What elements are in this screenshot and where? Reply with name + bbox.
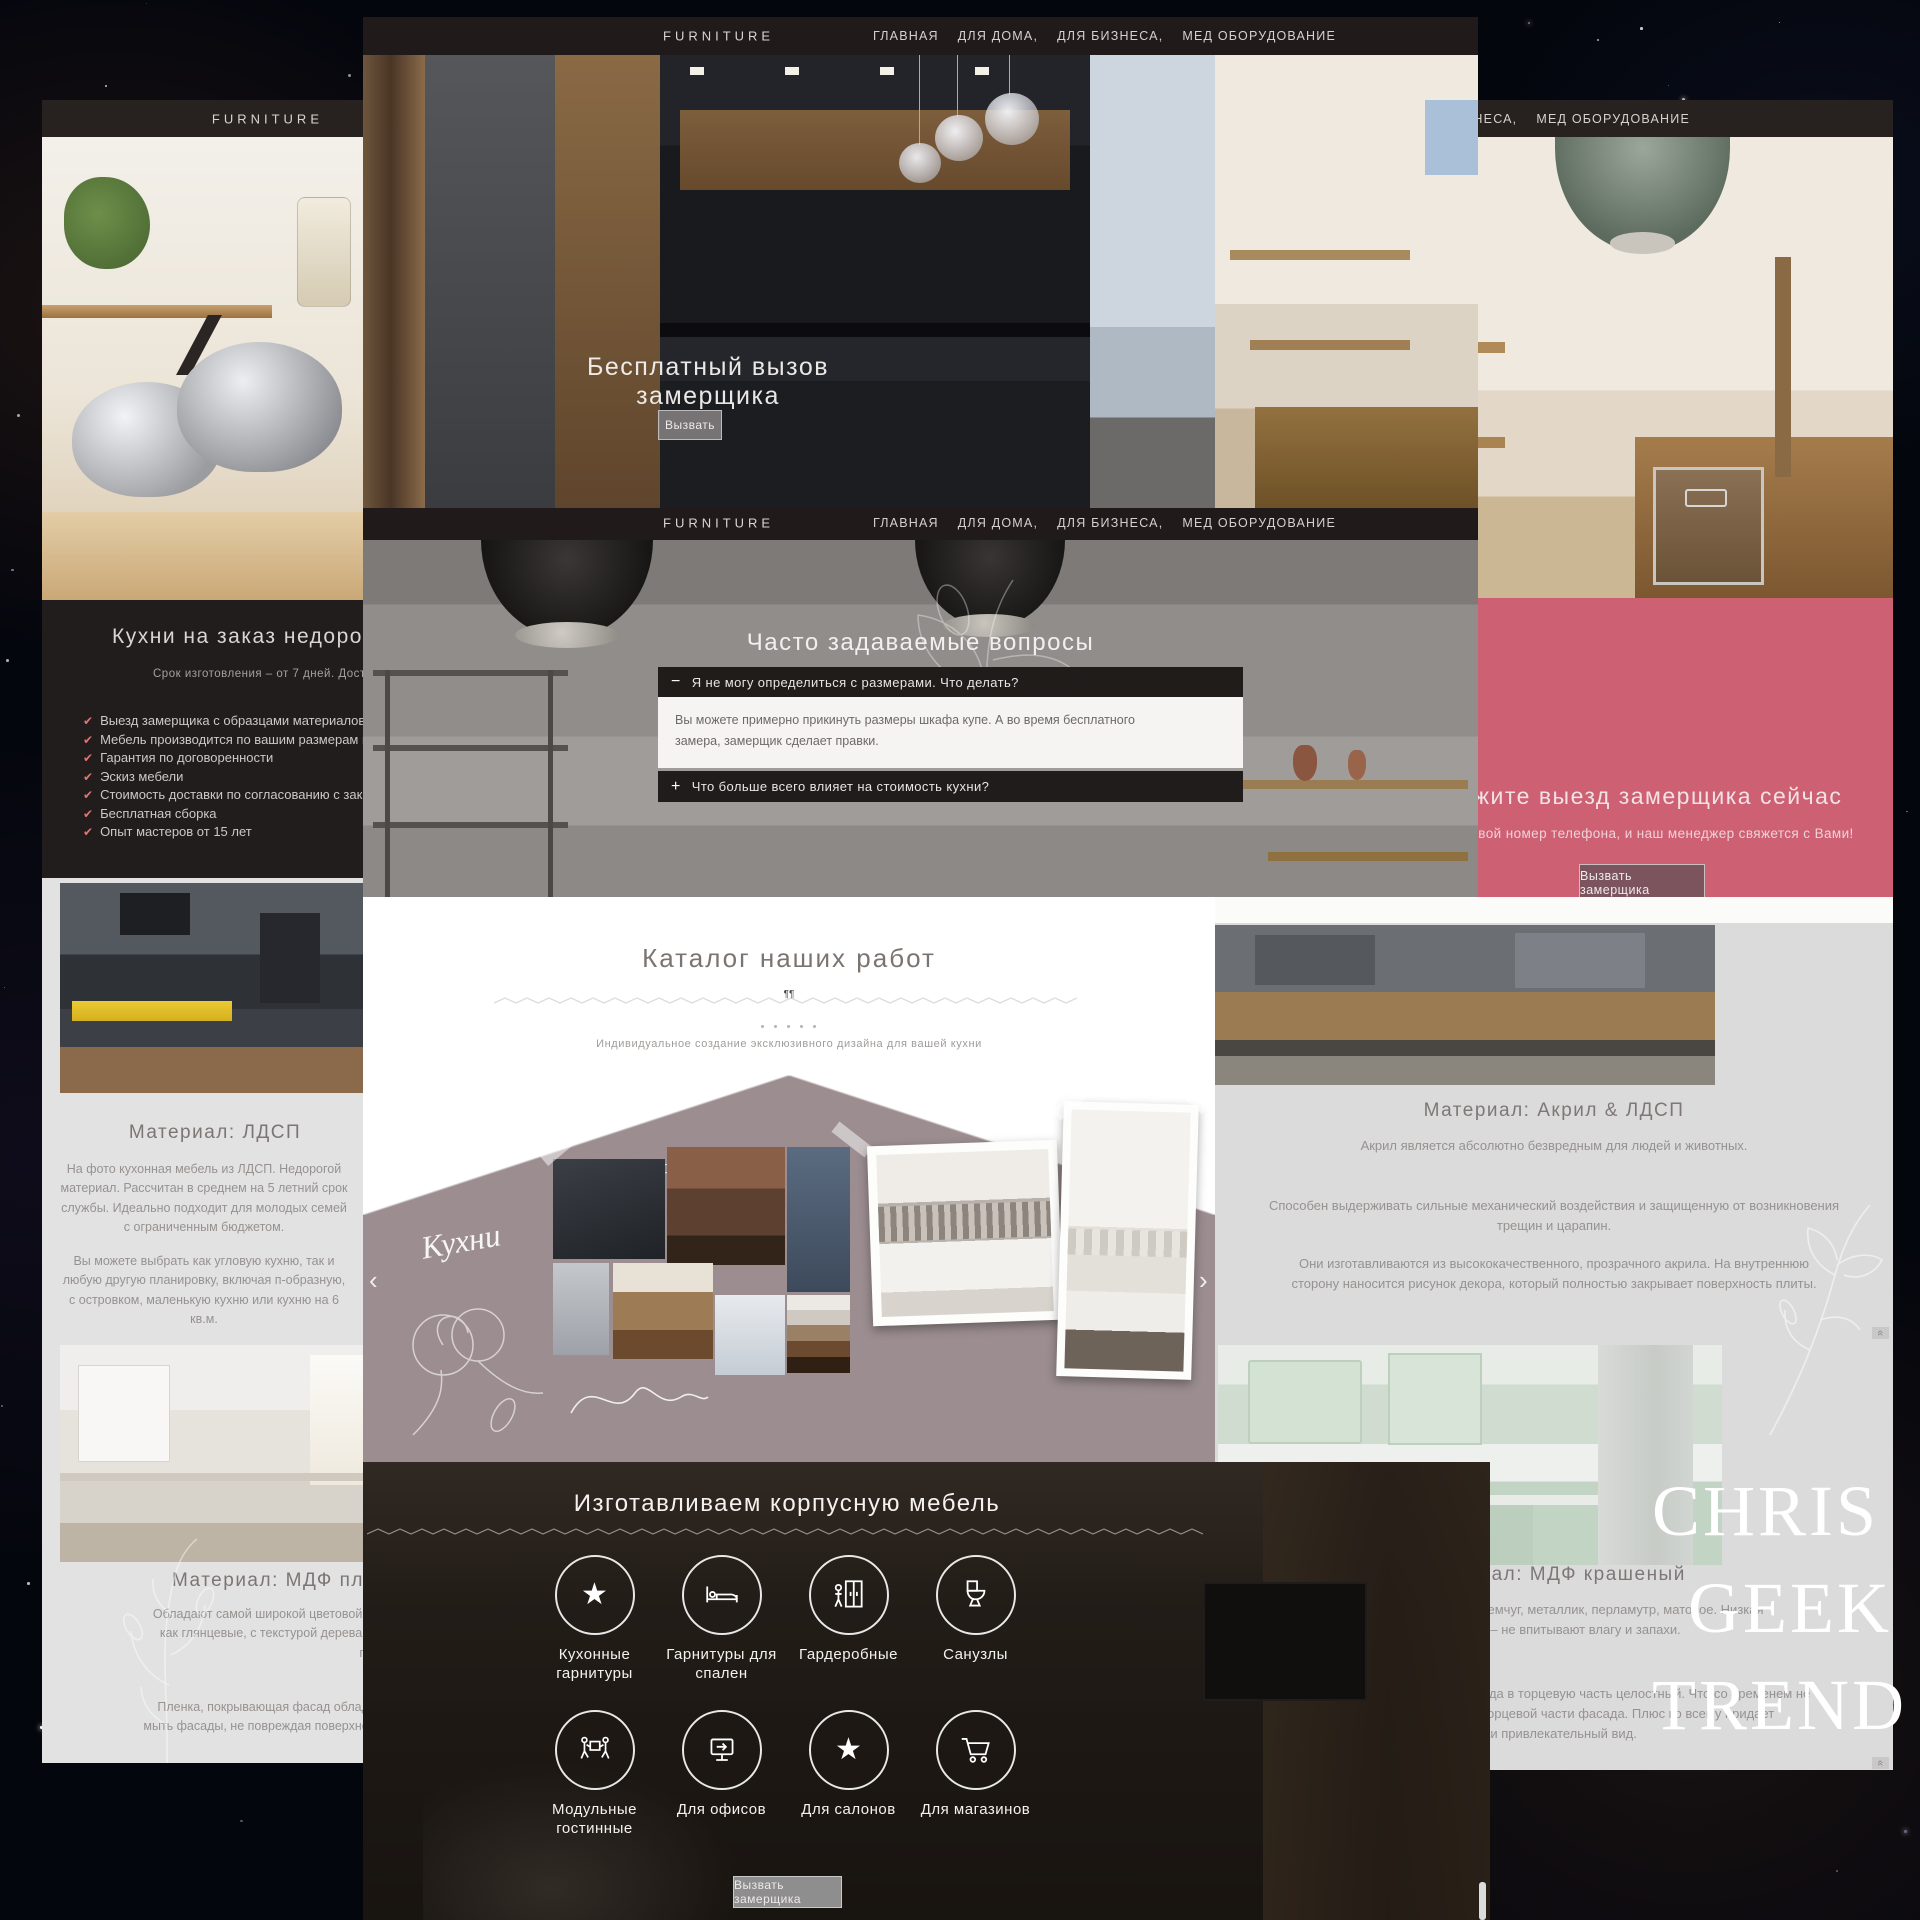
acryl-heading: Материал: Акрил & ЛДСП: [1254, 1100, 1854, 1122]
monitor-icon: [682, 1710, 762, 1790]
category-shops[interactable]: Для магазинов: [912, 1710, 1039, 1819]
checklist-text: Стоимость доставки по согласованию с зак…: [100, 786, 363, 804]
check-icon: ✔: [83, 750, 93, 768]
collage-photo-marble: [553, 1263, 609, 1355]
check-icon: ✔: [83, 787, 93, 805]
faq-question-1[interactable]: − Я не могу определиться с размерами. Чт…: [658, 667, 1243, 697]
category-bedroom-sets[interactable]: Гарнитуры для спален: [658, 1555, 785, 1683]
checklist-item: ✔Опыт мастеров от 15 лет: [83, 823, 363, 842]
pendant-lamp: [935, 115, 983, 161]
checklist-text: Эскиз мебели: [100, 768, 183, 786]
catalog-subtitle: Индивидуальное создание эксклюзивного ди…: [363, 1038, 1215, 1050]
checklist-item: ✔Выезд замерщика с образцами материалов: [83, 712, 363, 731]
nav-item-med-equipment[interactable]: МЕД ОБОРУДОВАНИЕ: [1536, 112, 1690, 126]
kitchen-photo-pots: [42, 137, 363, 600]
nav-item-for-home[interactable]: ДЛЯ ДОМА,: [958, 29, 1038, 43]
nav-item-home[interactable]: ГЛАВНАЯ: [873, 29, 939, 43]
checklist-text: Опыт мастеров от 15 лет: [100, 823, 252, 841]
faq-screenshot-panel: FURNITURE ГЛАВНАЯ ДЛЯ ДОМА, ДЛЯ БИЗНЕСА,…: [363, 505, 1478, 897]
pendant-lamp: [985, 93, 1039, 145]
workshop-screenshot-panel: Изготавливаем корпусную мебель ★ Кухонны…: [363, 1462, 1490, 1920]
cart-icon: [936, 1710, 1016, 1790]
hero-title: Бесплатный вызов замерщика: [528, 353, 888, 411]
category-offices[interactable]: Для офисов: [658, 1710, 785, 1819]
offer-subtitle: Срок изготовления – от 7 дней. Доставка,…: [153, 668, 363, 680]
category-bathrooms[interactable]: Санузлы: [912, 1555, 1039, 1664]
hero-screenshot-panel: FURNITURE ГЛАВНАЯ ДЛЯ ДОМА, ДЛЯ БИЗНЕСА,…: [363, 17, 1478, 508]
faq-question-text: Я не могу определиться с размерами. Что …: [692, 675, 1019, 690]
checklist-text: Мебель производится по вашим размерам и …: [100, 731, 363, 749]
collage-photo-dining: [613, 1263, 713, 1359]
category-label: Для салонов: [785, 1800, 912, 1819]
nav-item-med-equipment[interactable]: МЕД ОБОРУДОВАНИЕ: [1182, 516, 1336, 530]
collapse-icon[interactable]: −: [671, 673, 681, 691]
kitchen-photo-greywood: [1215, 925, 1715, 1085]
checklist-item: ✔Эскиз мебели: [83, 768, 363, 787]
collage-photo-loft: [667, 1147, 785, 1265]
ldsp-paragraph-2: Вы можете выбрать как угловую кухню, так…: [58, 1252, 350, 1330]
collage-palette-strips: [787, 1295, 850, 1373]
floral-branch-art: [97, 1535, 237, 1763]
call-measurer-button[interactable]: Вызвать замерщика: [1579, 864, 1705, 901]
nav-item-for-home[interactable]: ДЛЯ ДОМА,: [958, 516, 1038, 530]
offer-section: Кухни на заказ недорого в Алматы Срок из…: [42, 600, 363, 878]
scrollbar-thumb[interactable]: [1479, 1882, 1486, 1920]
wardrobe-icon: [809, 1555, 889, 1635]
call-measurer-bottom-button[interactable]: Вызвать замерщика: [733, 1876, 842, 1908]
checklist-item: ✔Мебель производится по вашим размерам и…: [83, 731, 363, 750]
check-icon: ✔: [83, 824, 93, 842]
carousel-prev-arrow[interactable]: ‹: [369, 1265, 378, 1296]
script-kitchens-text: Кухни: [418, 1216, 503, 1266]
watermark-trend: TREND: [1652, 1664, 1907, 1747]
offer-checklist: ✔Выезд замерщика с образцами материалов …: [83, 712, 363, 842]
check-icon: ✔: [83, 769, 93, 787]
left-screenshot-panel: FURNITURE Кухни на заказ недорого в Алма…: [42, 100, 363, 1763]
screenshot-canvas: FURNITURE Кухни на заказ недорого в Алма…: [0, 0, 1920, 1920]
nav-item-home[interactable]: ГЛАВНАЯ: [873, 516, 939, 530]
movers-icon: [555, 1710, 635, 1790]
checklist-item: ✔Стоимость доставки по согласованию с за…: [83, 786, 363, 805]
watermark-chris: CHRIS: [1652, 1470, 1879, 1553]
site-logo[interactable]: FURNITURE: [663, 515, 774, 530]
nav-item-for-business[interactable]: ДЛЯ БИЗНЕСА,: [1057, 516, 1163, 530]
faq-question-text: Что больше всего влияет на стоимость кух…: [692, 779, 990, 794]
faq-heading: Часто задаваемые вопросы: [363, 629, 1478, 657]
check-icon: ✔: [83, 806, 93, 824]
category-salons[interactable]: ★ Для салонов: [785, 1710, 912, 1819]
site-logo[interactable]: FURNITURE: [663, 29, 774, 44]
collage-photo-blue: [787, 1147, 850, 1292]
scroll-top-button[interactable]: «: [1872, 1757, 1889, 1769]
left-navbar: FURNITURE: [42, 100, 363, 137]
checklist-item: ✔Бесплатная сборка: [83, 805, 363, 824]
ldsp-heading: Материал: ЛДСП: [58, 1122, 363, 1144]
polaroid-photo-1: [867, 1140, 1063, 1327]
hero-photo: [363, 55, 1478, 508]
checklist-text: Бесплатная сборка: [100, 805, 216, 823]
nav-item-med-equipment[interactable]: МЕД ОБОРУДОВАНИЕ: [1182, 29, 1336, 43]
checklist-item: ✔Гарантия по договоренности: [83, 749, 363, 768]
watermark-geek: GEEK: [1688, 1567, 1892, 1650]
collage-photo-light: [715, 1295, 785, 1375]
kitchen-photo-yellow: [60, 883, 363, 1093]
acryl-paragraph-1: Акрил является абсолютно безвредным для …: [1354, 1136, 1754, 1156]
star-icon: ★: [555, 1555, 635, 1635]
hero-call-button[interactable]: Вызвать: [658, 410, 722, 440]
faq-answer-1: Вы можете примерно прикинуть размеры шка…: [658, 697, 1243, 768]
nav-item-for-business[interactable]: ДЛЯ БИЗНЕСА,: [1057, 29, 1163, 43]
category-label: Для магазинов: [912, 1800, 1039, 1819]
pendant-lamp: [899, 143, 941, 183]
floral-hibiscus-art: [383, 1275, 553, 1455]
workshop-heading: Изготавливаем корпусную мебель: [363, 1490, 1211, 1518]
catalog-screenshot-panel: Каталог наших работ ¶¶ Индивидуальное со…: [363, 897, 1215, 1466]
ldsp-paragraph-1: На фото кухонная мебель из ЛДСП. Недорог…: [58, 1160, 350, 1238]
category-wardrobes[interactable]: Гардеробные: [785, 1555, 912, 1664]
zigzag-divider: [367, 1528, 1207, 1536]
category-kitchen-sets[interactable]: ★ Кухонные гарнитуры: [531, 1555, 658, 1683]
hero-navbar: FURNITURE ГЛАВНАЯ ДЛЯ ДОМА, ДЛЯ БИЗНЕСА,…: [363, 17, 1478, 55]
carousel-dots[interactable]: [761, 1025, 816, 1028]
checklist-text: Выезд замерщика с образцами материалов: [100, 712, 363, 730]
carousel-next-arrow[interactable]: ›: [1199, 1265, 1208, 1296]
polaroid-photo-2: [1056, 1101, 1199, 1380]
check-icon: ✔: [83, 732, 93, 750]
checklist-text: Гарантия по договоренности: [100, 749, 273, 767]
bed-icon: [682, 1555, 762, 1635]
divider-ornament-icon: ¶¶: [363, 989, 1215, 1000]
category-label: Модульные гостинные: [531, 1800, 658, 1838]
category-label: Для офисов: [658, 1800, 785, 1819]
category-label: Санузлы: [912, 1645, 1039, 1664]
site-logo[interactable]: FURNITURE: [212, 111, 323, 126]
floral-magnolia-art: [1740, 1180, 1890, 1440]
toilet-icon: [936, 1555, 1016, 1635]
check-icon: ✔: [83, 713, 93, 731]
collage-photo-dark: [553, 1159, 665, 1259]
faq-navbar: FURNITURE ГЛАВНАЯ ДЛЯ ДОМА, ДЛЯ БИЗНЕСА,…: [363, 505, 1478, 540]
category-modular-livingrooms[interactable]: Модульные гостинные: [531, 1710, 658, 1838]
faq-question-2[interactable]: + Что больше всего влияет на стоимость к…: [658, 771, 1243, 802]
expand-icon[interactable]: +: [671, 778, 681, 796]
star-icon: ★: [809, 1710, 889, 1790]
offer-heading: Кухни на заказ недорого в Алматы: [112, 625, 363, 649]
collage-section: Кухни лаковая мебель: [363, 1075, 1215, 1466]
kitchen-photo-white: [60, 1345, 363, 1562]
category-label: Гарнитуры для спален: [658, 1645, 785, 1683]
catalog-heading: Каталог наших работ: [363, 943, 1215, 974]
category-label: Кухонные гарнитуры: [531, 1645, 658, 1683]
faq-answer-text: Вы можете примерно прикинуть размеры шка…: [675, 713, 1135, 748]
signature-script-art: [563, 1363, 713, 1433]
category-label: Гардеробные: [785, 1645, 912, 1664]
